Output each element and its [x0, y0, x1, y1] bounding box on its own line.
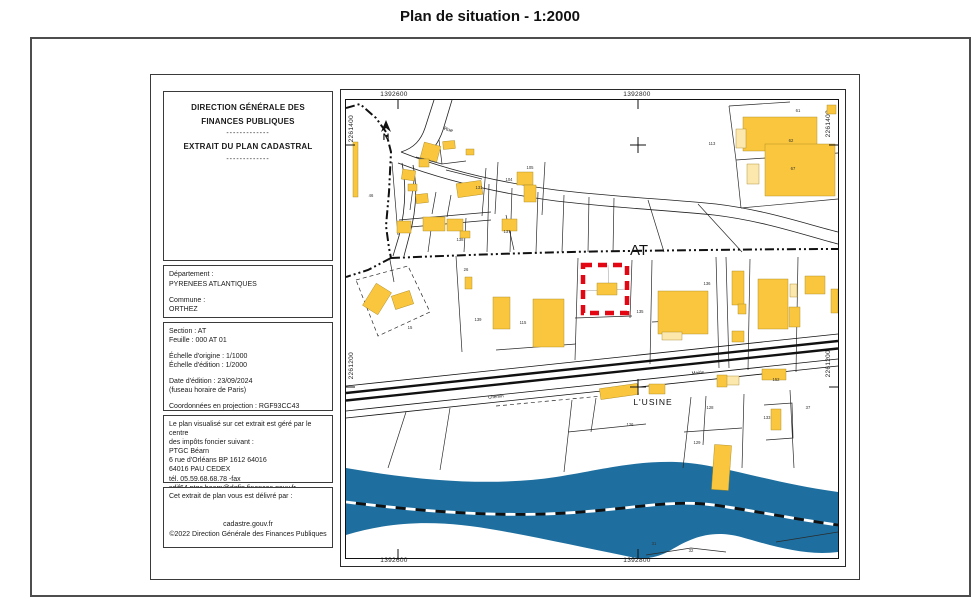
sheet-info-box: Section : AT Feuille : 000 AT 01 Échelle… — [163, 322, 333, 411]
parcel-number: 67 — [791, 166, 796, 171]
date-edition-line: Date d'édition : 23/09/2024 — [169, 377, 327, 386]
building — [362, 283, 391, 315]
buildings-layer — [353, 105, 838, 491]
parcel-number: 139 — [475, 317, 483, 322]
building — [758, 279, 788, 329]
delivery-copyright: ©2022 Direction Générale des Finances Pu… — [169, 530, 327, 540]
building — [443, 140, 456, 149]
building — [416, 193, 429, 203]
building — [717, 375, 727, 387]
office-line: des impôts foncier suivant : — [169, 438, 327, 447]
parcel-number: 32 — [689, 548, 694, 553]
map-canvas: 4610410513113813711361626726151391151351… — [346, 100, 838, 558]
delivery-line: Cet extrait de plan vous est délivré par… — [169, 492, 327, 502]
building — [732, 271, 744, 305]
building — [524, 185, 536, 202]
rue-label: Rue — [443, 126, 454, 134]
parcel-number: 128 — [707, 405, 715, 410]
parcel-number: 152 — [773, 377, 781, 382]
office-address: 64016 PAU CEDEX — [169, 465, 327, 474]
parcel-number: 115 — [520, 320, 527, 325]
office-phone: tél. 05.59.68.68.78 -fax — [169, 475, 327, 484]
building — [732, 331, 744, 342]
building — [423, 217, 445, 231]
building — [533, 299, 564, 347]
chemin-label: Chemin — [488, 393, 504, 400]
departement-value: PYRENEES ATLANTIQUES — [169, 280, 327, 290]
echelle-origine-line: Échelle d'origine : 1/1000 — [169, 352, 327, 361]
building — [831, 289, 838, 313]
parcel-number: 131 — [476, 185, 484, 190]
usine-label: L'USINE — [633, 397, 672, 407]
map-panel: 1392600 1392800 1392600 1392800 2261400 … — [340, 89, 846, 567]
building — [711, 444, 731, 490]
coord-x-top-left: 1392600 — [359, 91, 429, 98]
parcel-number: 15 — [408, 325, 413, 330]
parcel-number: 133 — [764, 415, 772, 420]
fuseau-line: (fuseau horaire de Paris) — [169, 386, 327, 395]
header-line: EXTRAIT DU PLAN CADASTRAL — [169, 140, 327, 154]
parcel-number: 138 — [457, 237, 465, 242]
building — [805, 276, 825, 294]
divider-dashes: ------------- — [169, 128, 327, 140]
office-box: Le plan visualisé sur cet extrait est gé… — [163, 415, 333, 483]
parcel-number: 137 — [504, 229, 512, 234]
parcel-number: 113 — [709, 141, 716, 146]
office-name: PTGC Béarn — [169, 447, 327, 456]
projection-line: Coordonnées en projection : RGF93CC43 — [169, 402, 327, 411]
parcel-number: 62 — [789, 138, 794, 143]
building — [790, 284, 797, 297]
building — [353, 142, 358, 197]
header-box: DIRECTION GÉNÉRALE DES FINANCES PUBLIQUE… — [163, 91, 333, 261]
parcel-number: 61 — [796, 108, 801, 113]
parcel-number: 105 — [527, 165, 535, 170]
section-at-label: AT — [630, 242, 648, 259]
north-label: N — [383, 132, 390, 142]
parcel-number: 129 — [694, 440, 702, 445]
building — [597, 283, 617, 295]
office-line: Le plan visualisé sur cet extrait est gé… — [169, 420, 327, 438]
parcel-number: 46 — [369, 193, 374, 198]
building — [662, 332, 682, 340]
building — [391, 290, 413, 309]
building — [397, 221, 411, 233]
parcel-number: 135 — [637, 309, 645, 314]
location-box: Département : PYRENEES ATLANTIQUES Commu… — [163, 265, 333, 318]
map-neatline: 4610410513113813711361626726151391151351… — [345, 99, 839, 559]
building — [649, 384, 665, 394]
building — [738, 304, 746, 314]
header-line: DIRECTION GÉNÉRALE DES — [169, 101, 327, 115]
building — [789, 307, 800, 327]
parcel-number: 136 — [704, 281, 712, 286]
mairie-label: Mairie — [691, 369, 704, 375]
parcel-number: 31 — [652, 541, 657, 546]
building — [765, 144, 835, 196]
commune-label: Commune : — [169, 296, 327, 306]
building — [465, 277, 472, 289]
building — [493, 297, 510, 329]
outer-frame: DIRECTION GÉNÉRALE DES FINANCES PUBLIQUE… — [30, 37, 971, 597]
page: Plan de situation - 1:2000 DIRECTION GÉN… — [0, 0, 980, 602]
building — [771, 409, 781, 430]
building — [419, 159, 429, 167]
building — [747, 164, 759, 184]
departement-label: Département : — [169, 270, 327, 280]
parcel-number: 26 — [464, 267, 469, 272]
section-line: Section : AT — [169, 327, 327, 336]
building — [466, 149, 474, 155]
coord-x-top-right: 1392800 — [602, 91, 672, 98]
divider-dashes: ------------- — [169, 154, 327, 166]
feuille-line: Feuille : 000 AT 01 — [169, 336, 327, 345]
building — [408, 184, 417, 191]
building — [401, 169, 415, 181]
delivery-site: cadastre.gouv.fr — [169, 520, 327, 530]
building — [447, 219, 463, 231]
commune-value: ORTHEZ — [169, 305, 327, 315]
building — [517, 172, 533, 185]
parcel-number: 37 — [806, 405, 811, 410]
building — [658, 291, 708, 334]
page-title: Plan de situation - 1:2000 — [0, 8, 980, 25]
building — [736, 129, 746, 148]
parcel-number: 104 — [506, 177, 514, 182]
delivery-box: Cet extrait de plan vous est délivré par… — [163, 487, 333, 548]
parcel-number: 126 — [627, 422, 635, 427]
header-line: FINANCES PUBLIQUES — [169, 115, 327, 129]
office-address: 6 rue d'Orléans BP 1612 64016 — [169, 456, 327, 465]
echelle-edition-line: Échelle d'édition : 1/2000 — [169, 361, 327, 370]
building — [827, 105, 836, 114]
dashed-parcel — [356, 266, 602, 406]
cadastral-extract-sheet: DIRECTION GÉNÉRALE DES FINANCES PUBLIQUE… — [150, 74, 860, 580]
